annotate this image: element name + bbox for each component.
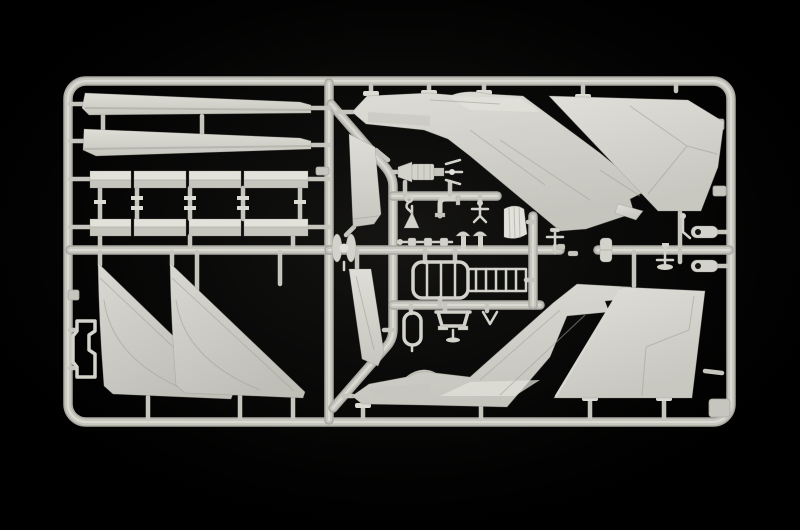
elevon-row-lower <box>90 219 308 236</box>
gear-door-pill-2 <box>691 260 718 272</box>
gear-door-pill-1 <box>691 226 718 238</box>
photo-canvas: Model kit sprue photograph <box>0 0 800 530</box>
corner-gusset <box>709 399 730 417</box>
canopy-shell <box>504 206 527 239</box>
small-cylinder <box>600 238 612 262</box>
right-frame-tab-lower <box>713 186 726 196</box>
sprue-photo: Model kit sprue photograph <box>0 0 800 530</box>
left-frame-tab <box>68 290 79 300</box>
divider-tab <box>316 167 329 175</box>
elevon-row-upper <box>90 171 308 188</box>
